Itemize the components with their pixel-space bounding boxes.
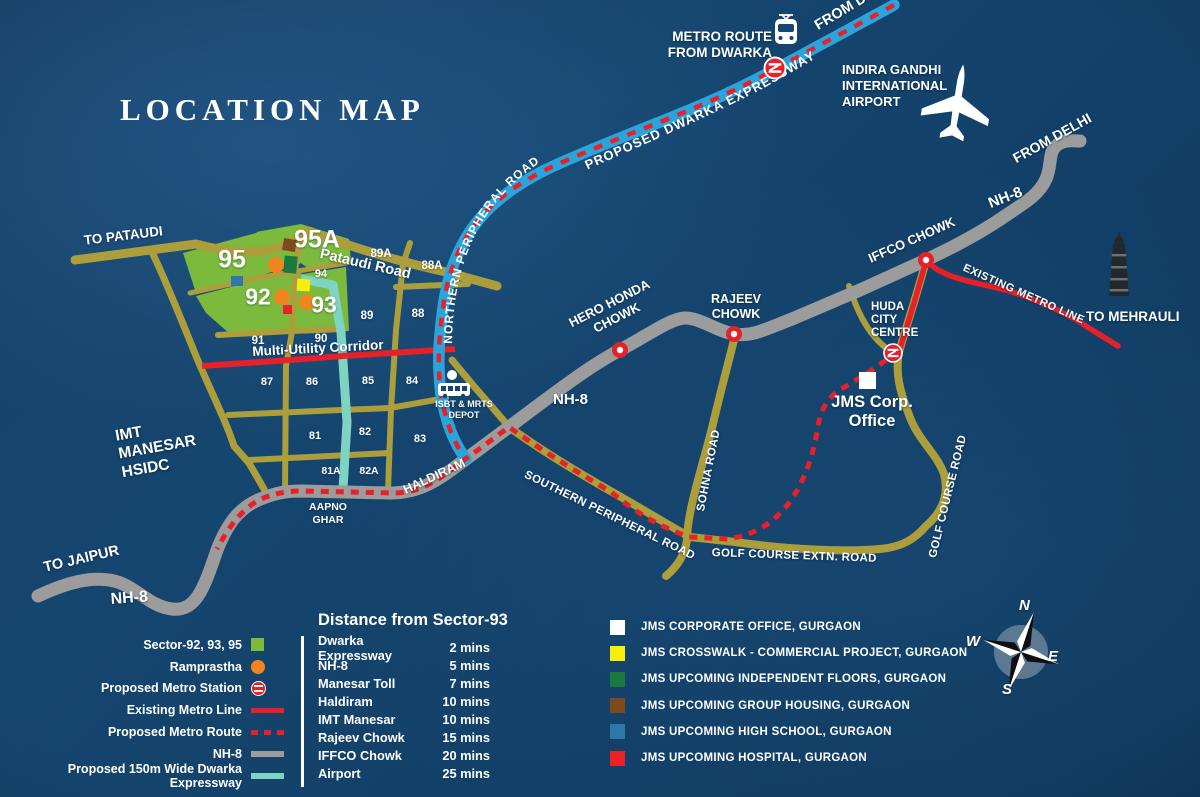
sector-road-h4: [228, 398, 446, 415]
jms-legend-label: JMS UPCOMING INDEPENDENT FLOORS, GURGAON: [641, 673, 946, 685]
jms-legend-swatch: [610, 751, 625, 766]
distance-table-title: Distance from Sector-93: [318, 611, 508, 630]
existing-metro-line-path: [899, 261, 1118, 352]
legend-item-label: Proposed Metro Station: [28, 681, 242, 695]
distance-time: 10 mins: [432, 712, 490, 727]
jms-legend-label: JMS UPCOMING GROUP HOUSING, GURGAON: [641, 700, 910, 712]
sector-number-82A: 82A: [359, 465, 378, 477]
jms-legend-item-3: JMS UPCOMING GROUP HOUSING, GURGAON: [610, 693, 967, 719]
distance-place: IFFCO Chowk: [318, 748, 432, 763]
legend-item-label: Proposed Metro Route: [28, 725, 242, 739]
sector-road-h5: [249, 453, 389, 460]
sector-number-84: 84: [406, 375, 418, 387]
jms-legend-label: JMS CROSSWALK - COMMERCIAL PROJECT, GURG…: [641, 647, 967, 659]
distance-row-7: Airport25 mins: [318, 764, 508, 782]
jms-legend-swatch: [610, 646, 625, 661]
indira-gandhi-airport-label: INDIRA GANDHI INTERNATIONAL AIRPORT: [842, 62, 947, 110]
sector-number-88A: 88A: [421, 260, 442, 272]
sector-number-89: 89: [361, 310, 374, 322]
distance-table-rows: Dwarka Expressway2 minsNH-85 minsManesar…: [318, 639, 508, 782]
compass-w: W: [966, 633, 980, 650]
sector-number-91: 91: [252, 335, 265, 347]
jms-legend-label: JMS UPCOMING HOSPITAL, GURGAON: [641, 752, 867, 764]
sector-number-95A: 95A: [294, 226, 340, 255]
sector-number-88: 88: [412, 308, 425, 320]
distance-time: 2 mins: [432, 640, 490, 655]
jms-legend-item-1: JMS CROSSWALK - COMMERCIAL PROJECT, GURG…: [610, 640, 967, 666]
rajeev-chowk-label: RAJEEV CHOWK: [705, 292, 767, 323]
ramprastha-marker: [274, 289, 290, 305]
jms-legend-swatch: [610, 672, 625, 687]
sector-number-95: 95: [218, 246, 246, 275]
metro-icon-swatch: [251, 681, 287, 696]
distance-place: NH-8: [318, 658, 432, 673]
nh8-bottom-label: NH-8: [110, 587, 149, 609]
jms-legend-label: JMS CORPORATE OFFICE, GURGAON: [641, 621, 861, 633]
sector-number-82: 82: [359, 426, 371, 438]
distance-row-3: Haldiram10 mins: [318, 693, 508, 711]
sector-number-85: 85: [362, 375, 374, 387]
aapno-ghar-label: AAPNO GHAR: [303, 501, 353, 527]
jms-corp-office-marker: [859, 372, 876, 389]
dwarka-expressway-road: [439, 5, 894, 459]
distance-row-0: Dwarka Expressway2 mins: [318, 639, 508, 657]
huda-city-centre-label: HUDA CITY CENTRE: [871, 301, 918, 341]
hero-honda-chowk-marker: [612, 342, 628, 358]
distance-place: Haldiram: [318, 694, 432, 709]
qutub-minar-icon: [1109, 232, 1129, 296]
legend-item-0: Sector-92, 93, 95: [28, 634, 287, 656]
legend-item-4: Proposed Metro Route: [28, 721, 287, 743]
sector-number-89A: 89A: [370, 248, 391, 260]
metro-route-from-dwarka-label: METRO ROUTE FROM DWARKA: [638, 29, 772, 62]
nh8-road: [38, 141, 1080, 610]
distance-row-5: Rajeev Chowk15 mins: [318, 728, 508, 746]
sector-number-93: 93: [311, 292, 337, 319]
red-line-swatch: [251, 708, 287, 713]
jms-legend-item-2: JMS UPCOMING INDEPENDENT FLOORS, GURGAON: [610, 666, 967, 692]
jms-legend-swatch: [610, 724, 625, 739]
sector-number-83: 83: [414, 433, 426, 445]
jms-legend-label: JMS UPCOMING HIGH SCHOOL, GURGAON: [641, 726, 892, 738]
sector-number-86: 86: [306, 376, 318, 388]
compass-n: N: [1019, 597, 1030, 614]
location-map-poster: NORTHERN PERIPHERAL ROAD PROPOSED DWARKA…: [0, 0, 1200, 797]
metro-station-icon-huda: [884, 344, 902, 362]
red-dashed-swatch: [251, 730, 287, 735]
jms-corp-office-label: JMS Corp. Office: [828, 393, 916, 431]
distance-row-2: Manesar Toll7 mins: [318, 675, 508, 693]
train-icon: [775, 15, 797, 44]
distance-place: Manesar Toll: [318, 676, 432, 691]
crosswalk-commercial-marker: [297, 279, 311, 292]
distance-time: 5 mins: [432, 658, 490, 673]
legend-item-label: Existing Metro Line: [28, 703, 242, 717]
legend-item-3: Existing Metro Line: [28, 699, 287, 721]
legend-item-6: Proposed 150m Wide Dwarka Expressway: [28, 765, 287, 787]
compass-s: S: [1002, 681, 1012, 698]
page-title: LOCATION MAP: [120, 92, 425, 128]
legend-item-1: Ramprastha: [28, 656, 287, 678]
legend-item-label: Ramprastha: [28, 660, 242, 674]
rajeev-chowk-marker: [726, 326, 742, 342]
legend-item-label: NH-8: [28, 747, 242, 761]
iffco-chowk-marker: [918, 252, 934, 268]
independent-floors-marker: [283, 256, 297, 274]
jms-legend-swatch: [610, 620, 625, 635]
green-square-swatch: [251, 638, 287, 651]
jms-legend-swatch: [610, 698, 625, 713]
sector-road-v2: [388, 264, 403, 490]
distance-time: 10 mins: [432, 694, 490, 709]
distance-place: Airport: [318, 766, 432, 781]
teal-line-swatch: [251, 773, 287, 779]
legend-item-label: Proposed 150m Wide Dwarka Expressway: [28, 762, 242, 790]
distance-time: 15 mins: [432, 730, 490, 745]
legend-divider: [301, 636, 304, 787]
legend-item-label: Sector-92, 93, 95: [28, 638, 242, 652]
distance-time: 25 mins: [432, 766, 490, 781]
sector-number-90: 90: [315, 333, 328, 345]
sector-number-92: 92: [245, 284, 271, 311]
nh8-mid-label: NH-8: [553, 391, 588, 409]
distance-row-1: NH-85 mins: [318, 657, 508, 675]
sector-number-81A: 81A: [321, 465, 340, 477]
dwarka-expressway-metro-dashes: [439, 5, 894, 459]
map-legend: Sector-92, 93, 95RamprasthaProposed Metr…: [28, 634, 287, 787]
jms-projects-legend: JMS CORPORATE OFFICE, GURGAONJMS CROSSWA…: [610, 614, 967, 771]
jms-legend-item-4: JMS UPCOMING HIGH SCHOOL, GURGAON: [610, 719, 967, 745]
isbt-depot-label: ISBT & MRTS DEPOT: [434, 399, 494, 421]
distance-table: Distance from Sector-93 Dwarka Expresswa…: [318, 611, 508, 782]
distance-place: Rajeev Chowk: [318, 730, 432, 745]
to-mehrauli-label: TO MEHRAULI: [1086, 309, 1180, 325]
hospital-marker: [283, 305, 292, 314]
jms-legend-item-5: JMS UPCOMING HOSPITAL, GURGAON: [610, 745, 967, 771]
ramprastha-marker: [268, 257, 284, 273]
distance-row-4: IMT Manesar10 mins: [318, 711, 508, 729]
compass-e: E: [1048, 648, 1058, 665]
legend-item-2: Proposed Metro Station: [28, 678, 287, 700]
sector-number-81: 81: [309, 430, 321, 442]
gray-line-swatch: [251, 751, 287, 757]
distance-time: 7 mins: [432, 676, 490, 691]
jms-legend-item-0: JMS CORPORATE OFFICE, GURGAON: [610, 614, 967, 640]
orange-circle-swatch: [251, 660, 287, 674]
sector-number-87: 87: [261, 376, 273, 388]
high-school-marker: [231, 276, 243, 286]
distance-time: 20 mins: [432, 748, 490, 763]
distance-place: IMT Manesar: [318, 712, 432, 727]
sector-number-94: 94: [315, 268, 327, 280]
distance-row-6: IFFCO Chowk20 mins: [318, 746, 508, 764]
